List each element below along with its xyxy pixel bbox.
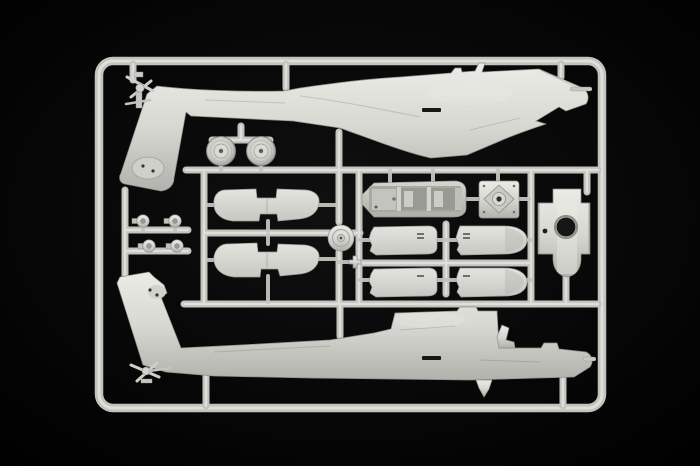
front-seat	[404, 191, 413, 207]
nose-probe	[570, 87, 592, 91]
stabilator-slot-upper	[422, 108, 441, 112]
tail-wheel-mount	[132, 157, 164, 179]
stabilator-slot-lower	[422, 356, 441, 360]
sprue-photo	[0, 0, 700, 466]
main-wheel-left	[207, 137, 236, 166]
nacelle-opening	[557, 218, 576, 237]
rotor-hub-disc	[328, 225, 354, 251]
main-wheel-right	[247, 137, 276, 166]
engine-panel-1	[369, 226, 437, 255]
cockpit-tub	[362, 181, 466, 217]
engine-panel-3	[369, 268, 437, 297]
nose-probe-lower	[583, 357, 596, 361]
rear-seat	[434, 191, 443, 207]
sprue-photo-canvas	[0, 0, 700, 466]
gearbox-plate	[479, 181, 519, 218]
